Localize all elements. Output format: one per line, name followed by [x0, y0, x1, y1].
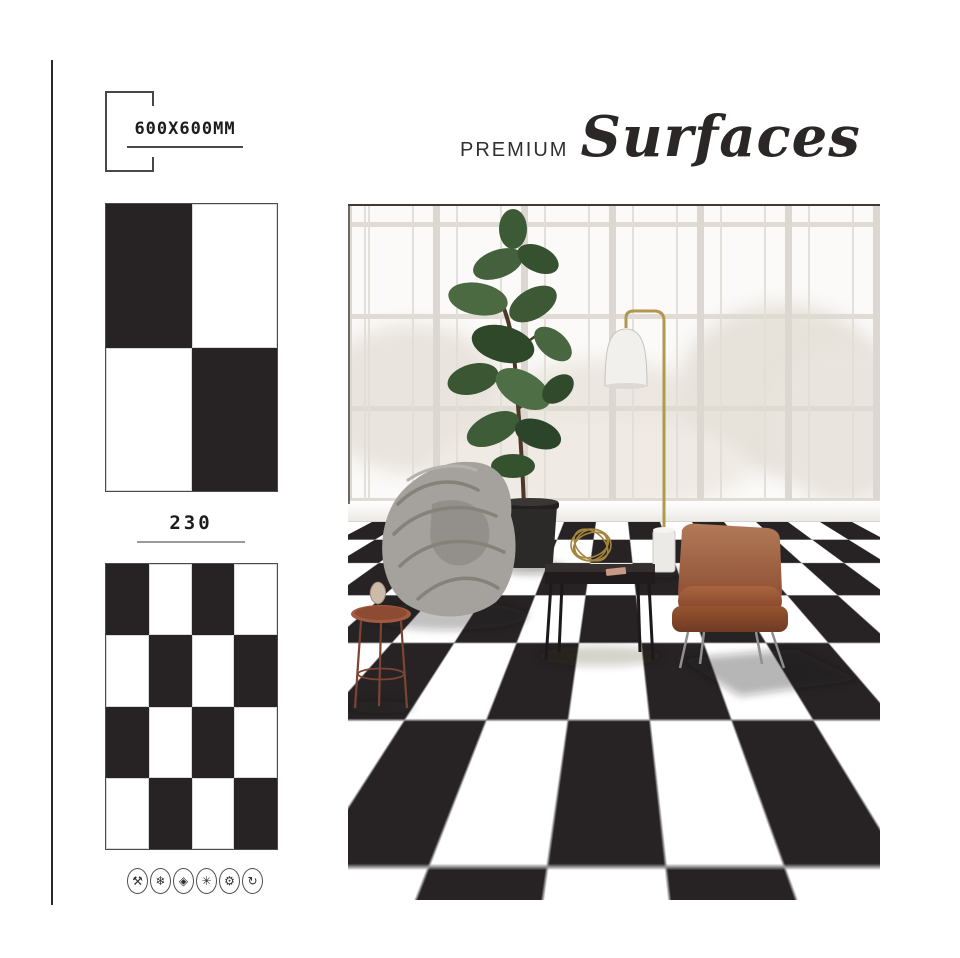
snowflake-icon: ❄: [150, 868, 171, 894]
armchair: [382, 462, 515, 617]
size-label: 600X600MM: [120, 119, 250, 139]
code-underline: [137, 541, 245, 543]
bracket-stub: [152, 157, 154, 170]
tile-cell: [234, 635, 277, 706]
bracket-stub: [152, 93, 154, 106]
size-underline: [127, 146, 243, 148]
tile-cell: [192, 564, 235, 635]
tile-swatch-4x4: [105, 563, 278, 850]
photo-frame-top: [348, 204, 880, 206]
diamond-icon: ◈: [173, 868, 194, 894]
asterisk-icon: ✳: [196, 868, 217, 894]
tile-cell: [192, 348, 278, 492]
floor-lamp: [605, 311, 675, 572]
tile-cell: [234, 707, 277, 778]
brand-prefix: PREMIUM: [460, 139, 568, 162]
photo-frame-left: [348, 204, 350, 504]
product-code: 230: [131, 512, 251, 534]
gold-sculpture: [568, 523, 614, 567]
tile-cell: [234, 564, 277, 635]
tile-cell: [106, 778, 149, 849]
tile-cell: [149, 635, 192, 706]
left-rule: [51, 60, 53, 905]
gear-icon: ⚙: [219, 868, 240, 894]
tile-cell: [192, 778, 235, 849]
tile-swatch-2x2: [105, 203, 278, 492]
table-sculpture: [370, 582, 385, 604]
tile-cell: [192, 707, 235, 778]
brand-name: Surfaces: [580, 104, 860, 170]
tile-cell: [192, 204, 278, 348]
feature-icons: ⚒❄◈✳⚙↻: [127, 868, 263, 894]
tile-cell: [149, 778, 192, 849]
crossed-tools-icon: ⚒: [127, 868, 148, 894]
coffee-table: [545, 564, 655, 660]
tile-cell: [106, 564, 149, 635]
room-photo: [348, 204, 880, 900]
tile-cell: [149, 564, 192, 635]
tile-cell: [149, 707, 192, 778]
tile-cell: [106, 204, 192, 348]
tile-cell: [106, 707, 149, 778]
tile-cell: [234, 778, 277, 849]
rotate-arrow-icon: ↻: [242, 868, 263, 894]
tile-cell: [192, 635, 235, 706]
tile-cell: [106, 635, 149, 706]
plant: [444, 209, 579, 506]
tile-cell: [106, 348, 192, 492]
side-table: [351, 582, 411, 708]
catalog-page: 600X600MM 230 ⚒❄◈✳⚙↻ PREMIUM Surfaces: [0, 0, 960, 958]
furniture-scene: [348, 204, 880, 900]
daybed: [672, 524, 788, 668]
brand-title: PREMIUM Surfaces: [460, 104, 861, 170]
